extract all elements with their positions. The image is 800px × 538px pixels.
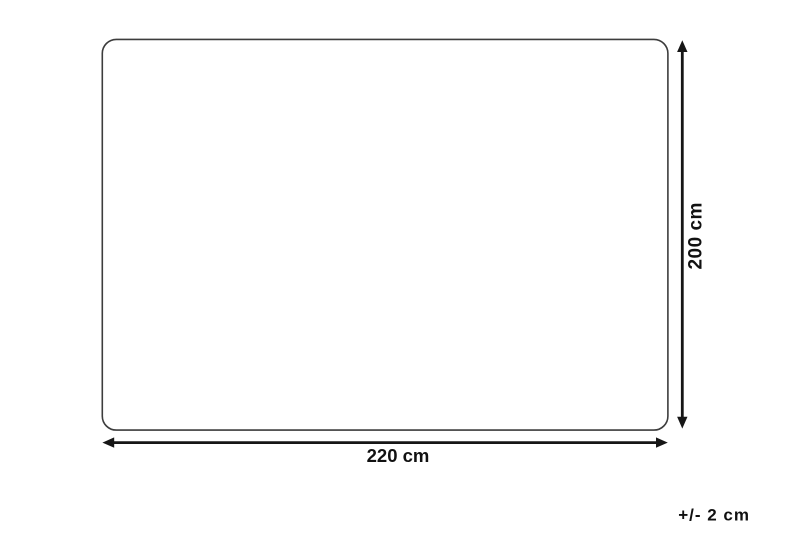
svg-text:220 cm: 220 cm (367, 445, 430, 466)
svg-text:200 cm: 200 cm (686, 202, 707, 269)
svg-text:+/- 2 cm: +/- 2 cm (678, 506, 750, 525)
